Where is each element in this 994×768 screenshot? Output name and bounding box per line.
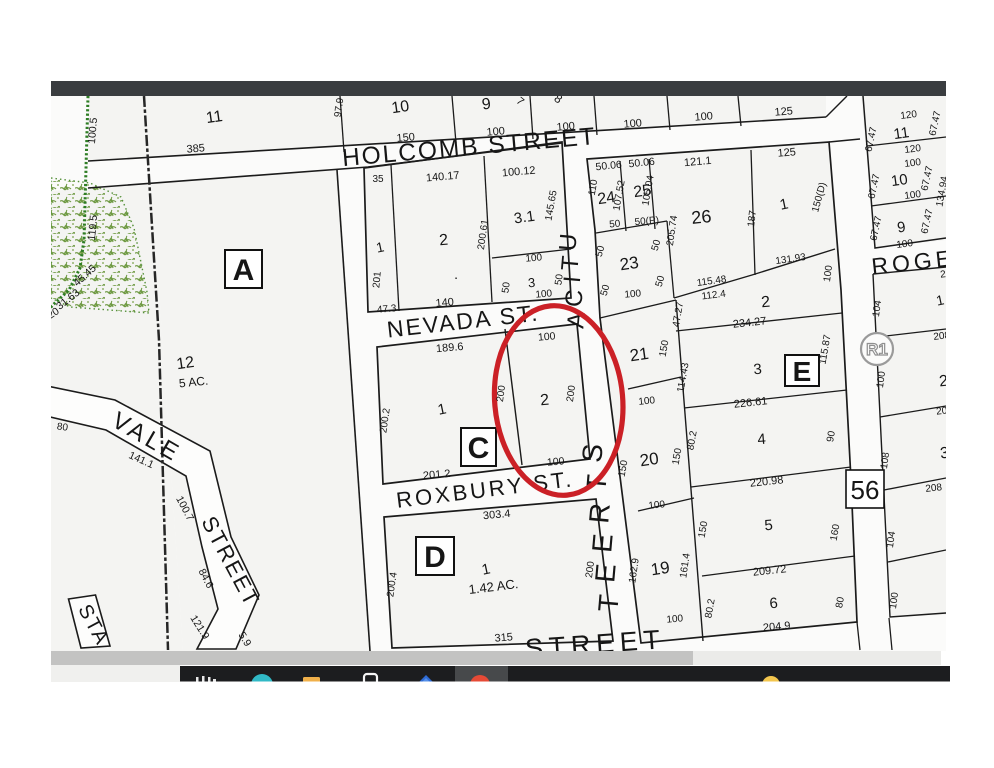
svg-text:E: E	[793, 356, 812, 387]
svg-text:A: A	[233, 254, 255, 287]
svg-text:385: 385	[186, 142, 205, 156]
svg-text:19: 19	[650, 558, 671, 579]
svg-text:100: 100	[623, 117, 642, 131]
svg-text:50: 50	[609, 219, 621, 231]
svg-text:140: 140	[435, 296, 454, 310]
svg-text:187: 187	[746, 209, 759, 227]
svg-text:D: D	[424, 541, 446, 574]
svg-text:100: 100	[535, 288, 553, 300]
svg-text:2: 2	[760, 294, 770, 312]
svg-text:R: R	[583, 502, 616, 525]
svg-text:21: 21	[629, 344, 650, 365]
svg-text:121.1: 121.1	[684, 155, 712, 169]
svg-text:201.2: 201.2	[423, 468, 451, 482]
svg-text:2: 2	[539, 392, 549, 410]
svg-text:47.3: 47.3	[377, 303, 398, 316]
svg-text:T: T	[556, 255, 584, 272]
svg-text:S: S	[576, 443, 609, 464]
svg-text:100: 100	[904, 157, 922, 170]
svg-text:10: 10	[390, 98, 410, 117]
svg-text:119.5: 119.5	[86, 214, 100, 241]
svg-text:20: 20	[639, 449, 660, 470]
svg-text:100: 100	[694, 110, 713, 124]
svg-text:201: 201	[371, 271, 383, 289]
svg-text:C: C	[468, 432, 490, 465]
svg-text:303.4: 303.4	[483, 508, 511, 522]
svg-text:80: 80	[56, 421, 69, 434]
svg-text:100: 100	[486, 125, 505, 139]
svg-text:56: 56	[851, 475, 880, 505]
svg-text:3: 3	[753, 361, 763, 379]
svg-text:125: 125	[774, 105, 793, 119]
svg-text:R1: R1	[866, 340, 888, 359]
svg-text:315: 315	[494, 631, 513, 645]
svg-text:.: .	[454, 266, 458, 282]
svg-text:100: 100	[624, 288, 642, 300]
svg-text:100: 100	[648, 499, 666, 512]
svg-text:35: 35	[372, 174, 384, 185]
svg-text:100: 100	[666, 613, 684, 625]
svg-text:3: 3	[527, 275, 536, 291]
svg-text:26: 26	[690, 206, 712, 228]
svg-text:120: 120	[904, 143, 922, 156]
svg-text:2: 2	[438, 232, 448, 250]
svg-text:10: 10	[890, 171, 909, 190]
svg-text:23: 23	[619, 253, 640, 274]
svg-text:3.1: 3.1	[513, 208, 536, 228]
svg-text:208: 208	[925, 482, 943, 495]
svg-text:189.6: 189.6	[436, 341, 464, 355]
svg-text:100: 100	[896, 238, 914, 251]
svg-text:120: 120	[900, 109, 918, 122]
svg-text:4: 4	[757, 431, 767, 449]
svg-text:6: 6	[769, 595, 779, 613]
svg-text:50(P): 50(P)	[634, 215, 659, 228]
svg-text:12: 12	[175, 354, 195, 373]
svg-text:50: 50	[500, 281, 513, 294]
svg-text:U: U	[554, 233, 582, 253]
svg-text:100: 100	[904, 189, 922, 202]
svg-text:50: 50	[553, 273, 566, 286]
svg-text:150: 150	[396, 131, 415, 145]
svg-text:11: 11	[205, 108, 224, 127]
svg-text:5: 5	[764, 517, 774, 535]
svg-text:100: 100	[537, 330, 556, 343]
svg-text:100: 100	[556, 120, 575, 134]
svg-text:T: T	[592, 593, 624, 613]
svg-text:100: 100	[546, 455, 565, 468]
svg-text:100: 100	[525, 252, 543, 264]
svg-text:100: 100	[638, 395, 656, 408]
svg-text:100.5: 100.5	[86, 117, 100, 144]
svg-text:204.9: 204.9	[763, 620, 791, 634]
svg-text:125: 125	[777, 146, 796, 160]
svg-text:E: E	[586, 533, 619, 554]
svg-text:11: 11	[892, 124, 910, 143]
